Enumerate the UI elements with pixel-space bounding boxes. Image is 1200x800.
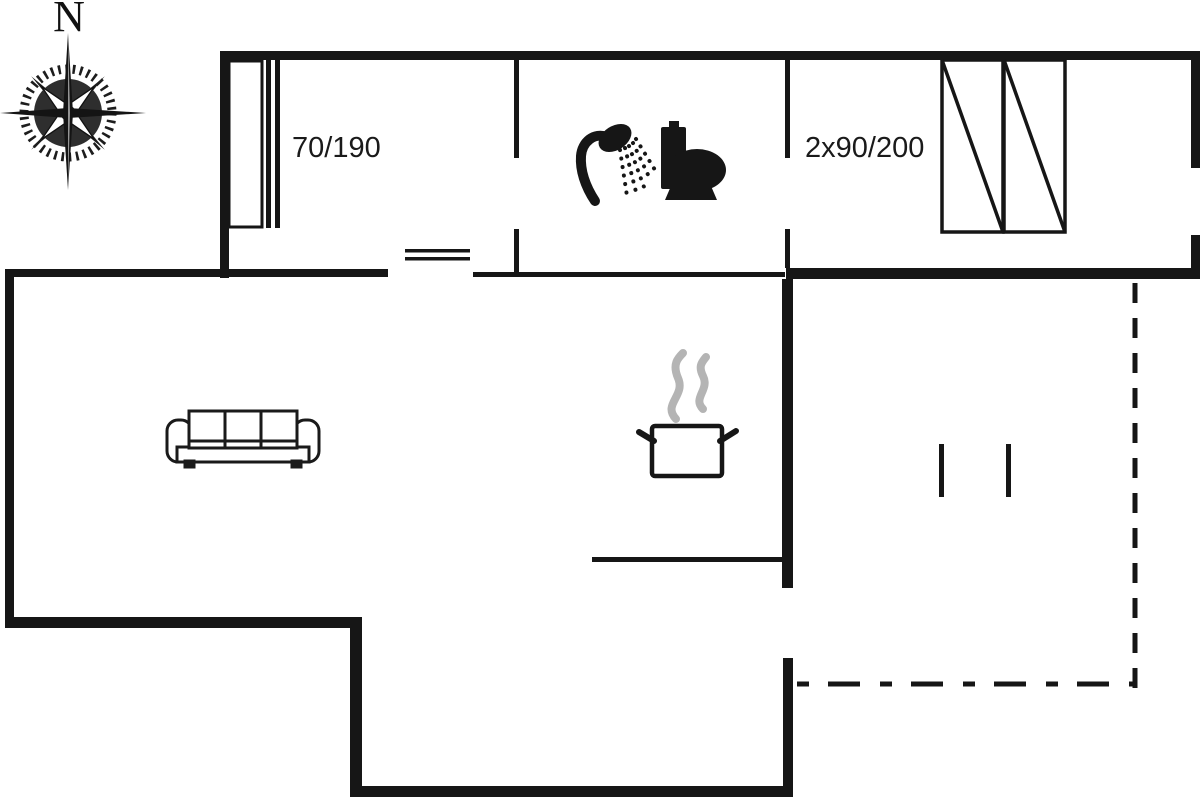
sliding-door-symbol bbox=[266, 58, 280, 228]
wall-kitchen-thin bbox=[592, 557, 783, 562]
toilet-icon bbox=[661, 121, 726, 200]
bed-symbol bbox=[1004, 60, 1065, 232]
terrace-dashed-boundary bbox=[797, 283, 1137, 688]
terrace-post-marks bbox=[939, 444, 1011, 497]
wall-bath-left-lower bbox=[514, 229, 519, 275]
bed-symbol bbox=[942, 60, 1003, 232]
door-size-label: 70/190 bbox=[292, 132, 381, 164]
sofa-icon bbox=[167, 411, 319, 467]
compass-north-label: N bbox=[53, 0, 85, 41]
steam-wisps bbox=[672, 353, 706, 419]
shower-head bbox=[593, 118, 636, 158]
wall-living-top-right-thin bbox=[473, 272, 785, 277]
window-symbol bbox=[405, 249, 470, 261]
floor-plan-canvas: 70/190 2x90/200 bbox=[0, 0, 1200, 800]
wall-step-vertical bbox=[350, 617, 362, 797]
wall-living-top-left bbox=[5, 269, 388, 277]
wall-bath-left-upper bbox=[514, 58, 519, 158]
pot-body bbox=[652, 426, 722, 476]
entrance-fixtures bbox=[229, 58, 280, 228]
wall-living-left-outer bbox=[5, 269, 14, 628]
floor-plan: 70/190 2x90/200 bbox=[0, 0, 1200, 800]
wall-right-outer-upper bbox=[1191, 51, 1200, 168]
wall-mid-right-lower bbox=[783, 658, 793, 797]
cooking-pot-icon bbox=[639, 353, 736, 476]
wall-mid-right-upper bbox=[782, 279, 793, 588]
compass-needles bbox=[0, 33, 146, 190]
wardrobe-symbol bbox=[229, 61, 262, 227]
shower-spray-dots bbox=[620, 139, 655, 196]
wall-bath-right-lower bbox=[785, 229, 790, 268]
wall-lower-bottom bbox=[350, 786, 793, 797]
sofa-foot-right bbox=[292, 461, 301, 467]
bed-size-label: 2x90/200 bbox=[805, 132, 924, 164]
bed-symbols bbox=[942, 60, 1065, 232]
compass-rose-icon: N bbox=[0, 0, 146, 190]
wall-bath-right-upper bbox=[785, 58, 790, 158]
shower-icon bbox=[581, 118, 655, 201]
wall-living-bottom bbox=[5, 617, 362, 628]
sofa-foot-left bbox=[185, 461, 194, 467]
wall-bedroom-bottom bbox=[786, 268, 1200, 279]
